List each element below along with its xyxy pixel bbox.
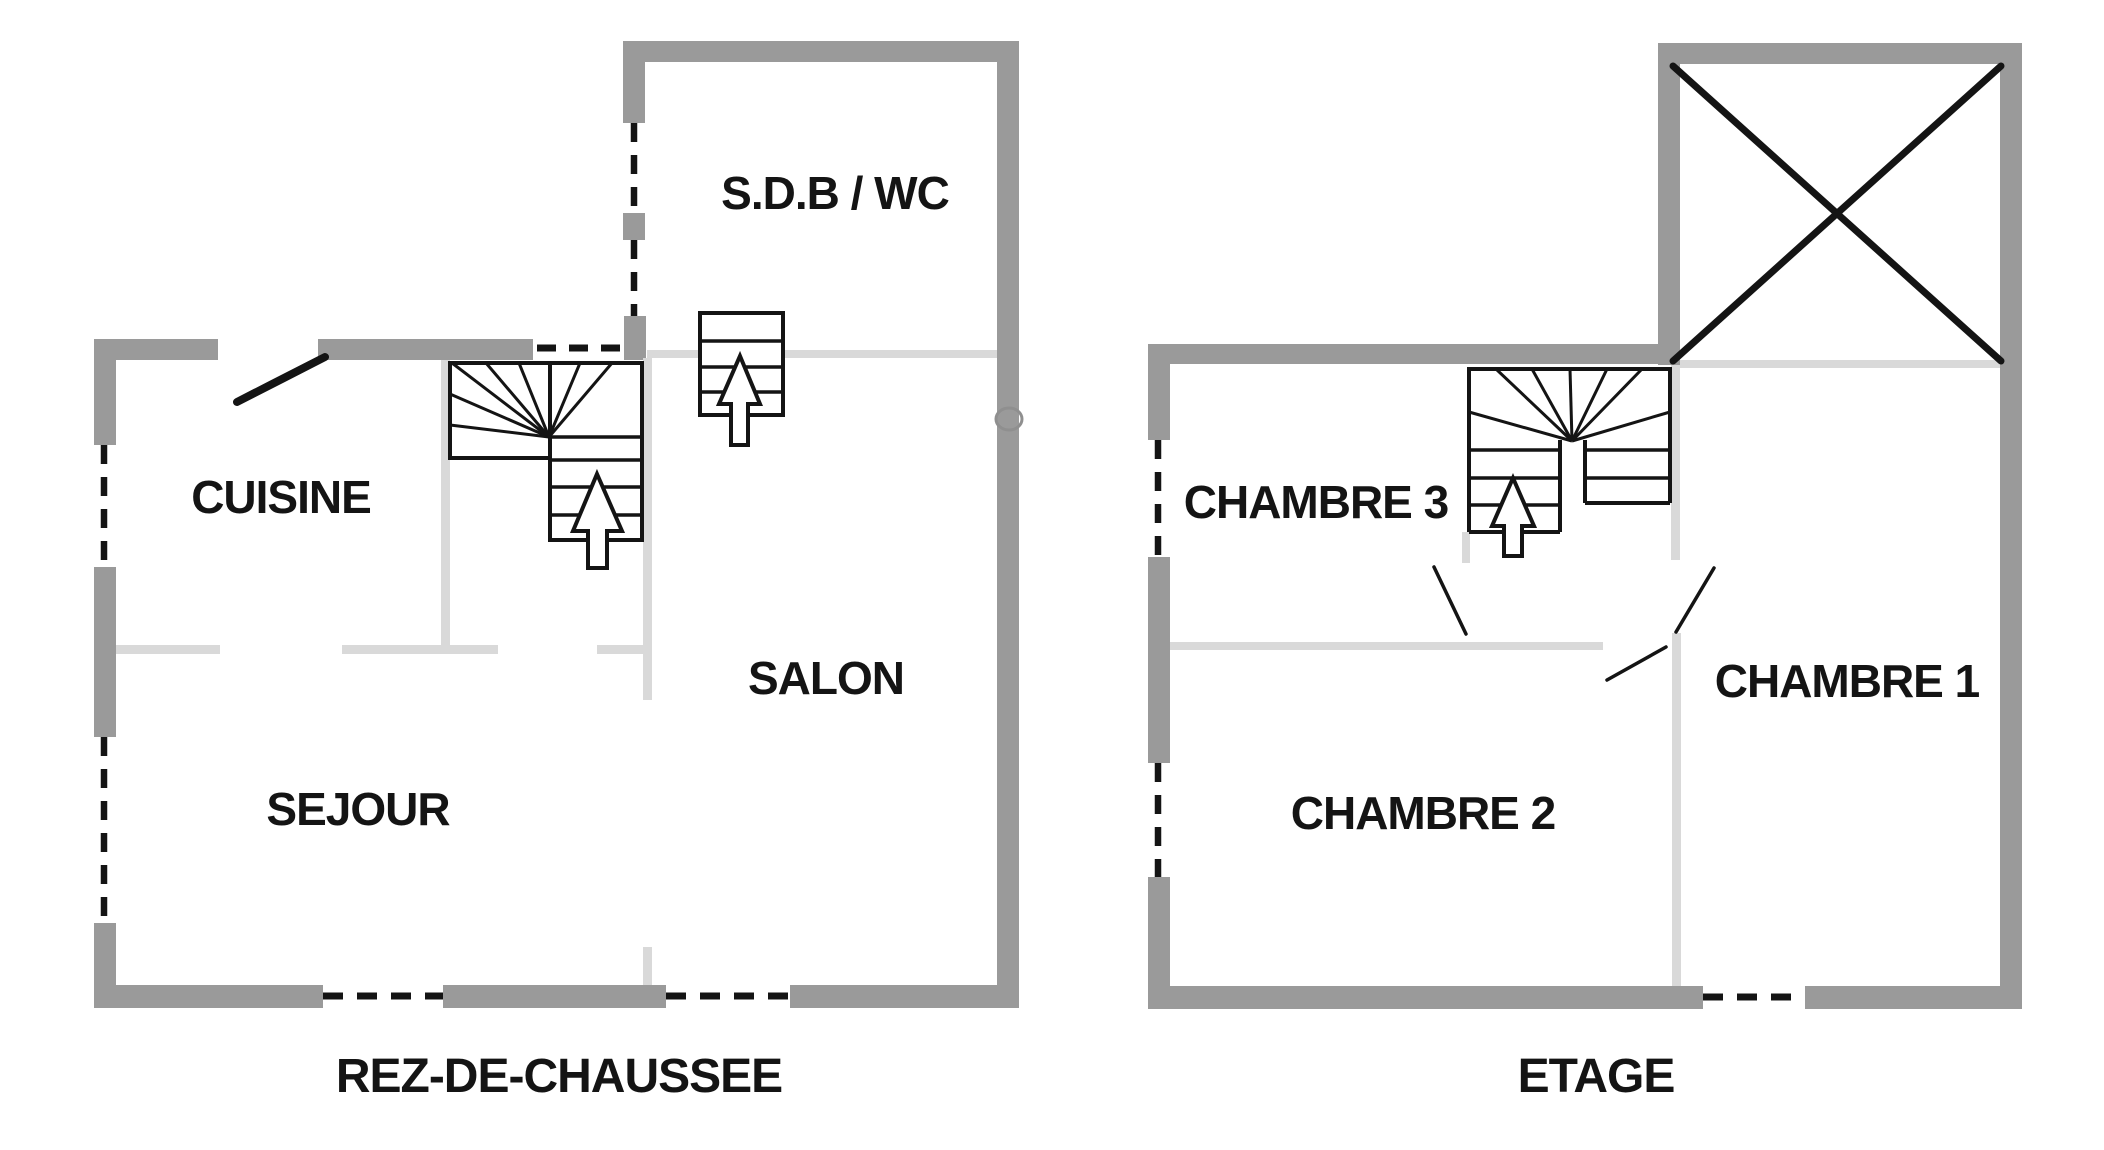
- wall-segment: [94, 339, 116, 445]
- wall-segment: [1148, 344, 1170, 440]
- wall-segment: [623, 41, 1019, 62]
- room-label-chambre3: CHAMBRE 3: [1184, 479, 1448, 525]
- room-label-cuisine: CUISINE: [191, 474, 371, 520]
- door-swing: [237, 357, 325, 402]
- partition-line: [342, 645, 498, 654]
- room-label-chambre2: CHAMBRE 2: [1291, 790, 1555, 836]
- partition-line: [1170, 642, 1603, 650]
- room-label-sejour: SEJOUR: [266, 786, 449, 832]
- wall-segment: [1658, 43, 2022, 64]
- partition-line: [597, 645, 652, 654]
- partition-line: [643, 947, 652, 985]
- partition-line: [1671, 365, 1680, 560]
- wall-segment: [1658, 43, 1680, 365]
- wall-segment: [1805, 986, 2022, 1009]
- staircase-rdc: [450, 363, 642, 568]
- plan-drawing: [0, 0, 2104, 1150]
- wall-segment: [443, 985, 666, 1008]
- wall-segment: [790, 985, 1019, 1008]
- staircase-etage: [1469, 369, 1670, 556]
- wall-segment: [1148, 877, 1170, 1003]
- room-label-salon: SALON: [748, 655, 904, 701]
- staircase-upper-flight: [700, 313, 783, 445]
- partition-line: [1672, 633, 1681, 986]
- floor-title-etage: ETAGE: [1518, 1053, 1675, 1101]
- wall-window-block: [623, 213, 645, 240]
- wall-segment: [997, 41, 1019, 1008]
- wall-segment: [2000, 43, 2022, 1009]
- wall-segment: [318, 339, 533, 360]
- wall-segment: [94, 567, 116, 737]
- partition-line: [116, 645, 220, 654]
- room-label-sdb-wc: S.D.B / WC: [721, 170, 949, 216]
- partition-line: [1462, 532, 1470, 563]
- floor-plan-sheet: CUISINE SEJOUR SALON S.D.B / WC REZ-DE-C…: [0, 0, 2104, 1150]
- void-cross: [1673, 66, 2001, 361]
- door-swing: [1434, 567, 1466, 634]
- wall-segment: [94, 985, 323, 1008]
- wall-window-block: [624, 316, 646, 360]
- room-label-chambre1: CHAMBRE 1: [1715, 658, 1979, 704]
- partition-line: [1680, 360, 2000, 368]
- wall-segment: [1148, 557, 1170, 763]
- door-swing: [1676, 568, 1714, 632]
- floor-title-rdc: REZ-DE-CHAUSSEE: [336, 1053, 782, 1101]
- wall-segment: [623, 41, 645, 123]
- wall-segment: [1148, 344, 1670, 364]
- door-swing: [1607, 647, 1666, 680]
- wall-segment: [1148, 986, 1703, 1009]
